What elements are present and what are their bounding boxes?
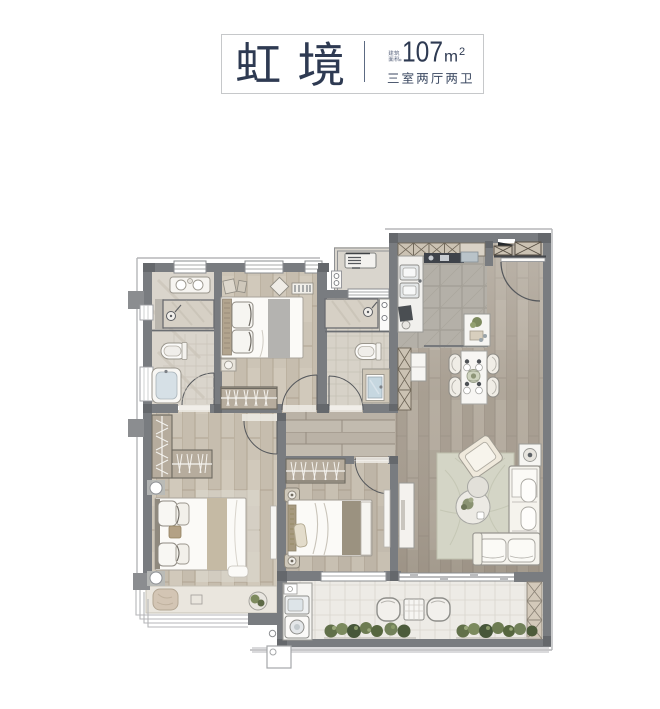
svg-text:m: m [444,49,458,66]
svg-text:107: 107 [402,37,443,69]
svg-text:2: 2 [459,46,465,58]
